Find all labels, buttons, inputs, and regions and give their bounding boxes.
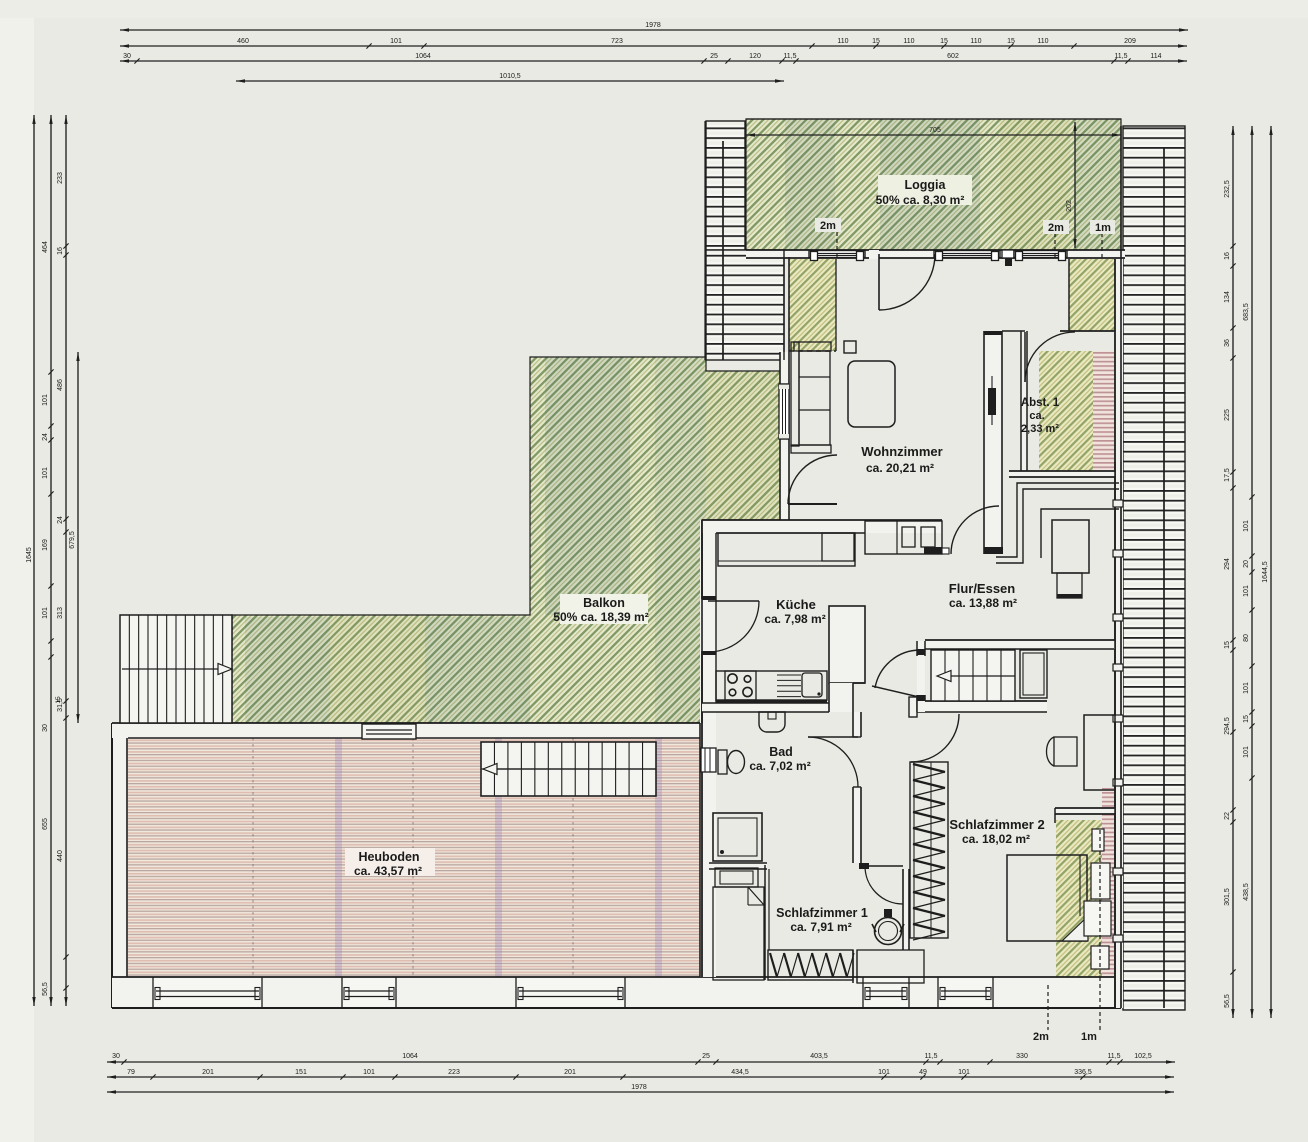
svg-text:ca. 7,91 m²: ca. 7,91 m²: [790, 920, 851, 934]
svg-text:36: 36: [1224, 339, 1231, 347]
svg-text:101: 101: [42, 607, 49, 619]
svg-text:Flur/Essen: Flur/Essen: [949, 581, 1016, 596]
svg-text:101: 101: [42, 394, 49, 406]
svg-text:440: 440: [57, 850, 64, 862]
svg-text:11,5: 11,5: [1114, 53, 1127, 60]
svg-text:Bad: Bad: [769, 745, 793, 759]
svg-text:460: 460: [237, 38, 249, 45]
svg-text:15: 15: [1224, 641, 1231, 649]
svg-text:313: 313: [57, 607, 64, 619]
svg-text:683,5: 683,5: [1243, 303, 1250, 321]
svg-text:11,5: 11,5: [1107, 1053, 1120, 1060]
svg-text:30: 30: [112, 1053, 120, 1060]
svg-text:101: 101: [1243, 520, 1250, 532]
svg-text:Loggia: Loggia: [905, 178, 947, 192]
svg-text:1064: 1064: [402, 1053, 418, 1060]
svg-text:79: 79: [127, 1069, 135, 1076]
svg-text:2,33 m²: 2,33 m²: [1021, 423, 1059, 435]
svg-text:434,5: 434,5: [731, 1069, 749, 1076]
svg-text:Küche: Küche: [776, 597, 816, 612]
svg-text:15: 15: [55, 696, 62, 704]
svg-text:30: 30: [42, 724, 49, 732]
svg-text:15: 15: [1007, 38, 1015, 45]
svg-text:Heuboden: Heuboden: [358, 850, 419, 864]
svg-text:49: 49: [919, 1069, 927, 1076]
svg-text:464: 464: [42, 241, 49, 253]
svg-text:114: 114: [1150, 53, 1161, 60]
svg-text:ca. 20,21 m²: ca. 20,21 m²: [866, 461, 934, 475]
svg-text:101: 101: [1243, 746, 1250, 758]
svg-text:232,5: 232,5: [1224, 180, 1231, 198]
svg-text:15: 15: [1243, 715, 1250, 723]
svg-text:22: 22: [1224, 812, 1231, 820]
svg-text:723: 723: [611, 38, 623, 45]
svg-text:655: 655: [42, 818, 49, 830]
svg-text:Abst. 1: Abst. 1: [1021, 397, 1060, 409]
svg-text:101: 101: [390, 38, 402, 45]
svg-text:50% ca. 8,30 m²: 50% ca. 8,30 m²: [876, 193, 965, 207]
svg-text:294: 294: [1224, 558, 1231, 570]
svg-text:110: 110: [837, 38, 848, 45]
svg-text:110: 110: [970, 38, 981, 45]
svg-text:486: 486: [57, 379, 64, 391]
svg-text:24: 24: [57, 516, 64, 524]
svg-text:15: 15: [872, 38, 880, 45]
svg-text:11,5: 11,5: [783, 53, 796, 60]
svg-text:16: 16: [1224, 252, 1231, 260]
svg-text:1978: 1978: [645, 22, 661, 29]
svg-text:ca. 18,02 m²: ca. 18,02 m²: [962, 832, 1030, 846]
svg-text:336,5: 336,5: [1074, 1069, 1092, 1076]
svg-text:17,5: 17,5: [1224, 468, 1231, 482]
svg-text:1m: 1m: [1081, 1031, 1097, 1043]
svg-text:201: 201: [202, 1069, 214, 1076]
svg-text:ca. 7,02 m²: ca. 7,02 m²: [749, 759, 810, 773]
svg-text:16: 16: [57, 247, 64, 255]
svg-text:438,5: 438,5: [1243, 883, 1250, 901]
svg-text:20: 20: [1243, 560, 1250, 568]
svg-text:1m: 1m: [1095, 222, 1111, 234]
svg-text:233: 233: [57, 172, 64, 184]
svg-text:ca. 13,88 m²: ca. 13,88 m²: [949, 596, 1017, 610]
svg-text:25: 25: [702, 1053, 710, 1060]
svg-text:301,5: 301,5: [1224, 888, 1231, 906]
svg-text:110: 110: [903, 38, 914, 45]
svg-text:11,5: 11,5: [924, 1053, 937, 1060]
svg-text:15: 15: [940, 38, 948, 45]
svg-text:Schlafzimmer 2: Schlafzimmer 2: [949, 817, 1044, 832]
svg-text:101: 101: [958, 1069, 970, 1076]
svg-text:101: 101: [1243, 585, 1250, 597]
svg-text:50% ca. 18,39 m²: 50% ca. 18,39 m²: [553, 610, 648, 624]
svg-text:56,5: 56,5: [42, 982, 49, 996]
svg-text:602: 602: [947, 53, 959, 60]
svg-text:110: 110: [1037, 38, 1048, 45]
svg-text:101: 101: [363, 1069, 375, 1076]
svg-text:1644,5: 1644,5: [1262, 561, 1269, 583]
svg-text:679,5: 679,5: [69, 531, 76, 549]
svg-text:102,5: 102,5: [1134, 1053, 1152, 1060]
svg-text:Balkon: Balkon: [583, 596, 625, 610]
svg-text:134: 134: [1224, 291, 1231, 303]
svg-text:202: 202: [1066, 200, 1073, 212]
svg-text:201: 201: [564, 1069, 576, 1076]
svg-text:225: 225: [1224, 409, 1231, 421]
svg-text:101: 101: [42, 467, 49, 479]
svg-text:101: 101: [878, 1069, 890, 1076]
svg-text:ca.: ca.: [1029, 410, 1044, 422]
svg-text:24: 24: [42, 433, 49, 441]
svg-text:705: 705: [929, 127, 941, 134]
svg-text:2m: 2m: [1048, 222, 1064, 234]
svg-text:30: 30: [123, 53, 131, 60]
svg-text:2m: 2m: [1033, 1031, 1049, 1043]
svg-text:120: 120: [749, 53, 761, 60]
svg-text:ca. 7,98 m²: ca. 7,98 m²: [764, 612, 825, 626]
svg-text:80: 80: [1243, 634, 1250, 642]
svg-text:101: 101: [1243, 682, 1250, 694]
svg-text:ca. 43,57 m²: ca. 43,57 m²: [354, 864, 422, 878]
svg-text:2m: 2m: [820, 220, 836, 232]
svg-text:294,5: 294,5: [1224, 717, 1231, 735]
svg-text:330: 330: [1016, 1053, 1028, 1060]
svg-text:Wohnzimmer: Wohnzimmer: [861, 444, 942, 459]
svg-text:1010,5: 1010,5: [499, 73, 521, 80]
svg-text:1064: 1064: [415, 53, 431, 60]
svg-text:209: 209: [1124, 38, 1136, 45]
svg-text:403,5: 403,5: [810, 1053, 828, 1060]
svg-text:1978: 1978: [631, 1084, 647, 1091]
svg-text:Schlafzimmer 1: Schlafzimmer 1: [776, 906, 868, 920]
svg-text:56,5: 56,5: [1224, 994, 1231, 1008]
svg-text:169: 169: [42, 539, 49, 551]
svg-text:151: 151: [295, 1069, 307, 1076]
svg-text:1645: 1645: [26, 547, 33, 563]
svg-text:25: 25: [710, 53, 718, 60]
svg-text:223: 223: [448, 1069, 460, 1076]
